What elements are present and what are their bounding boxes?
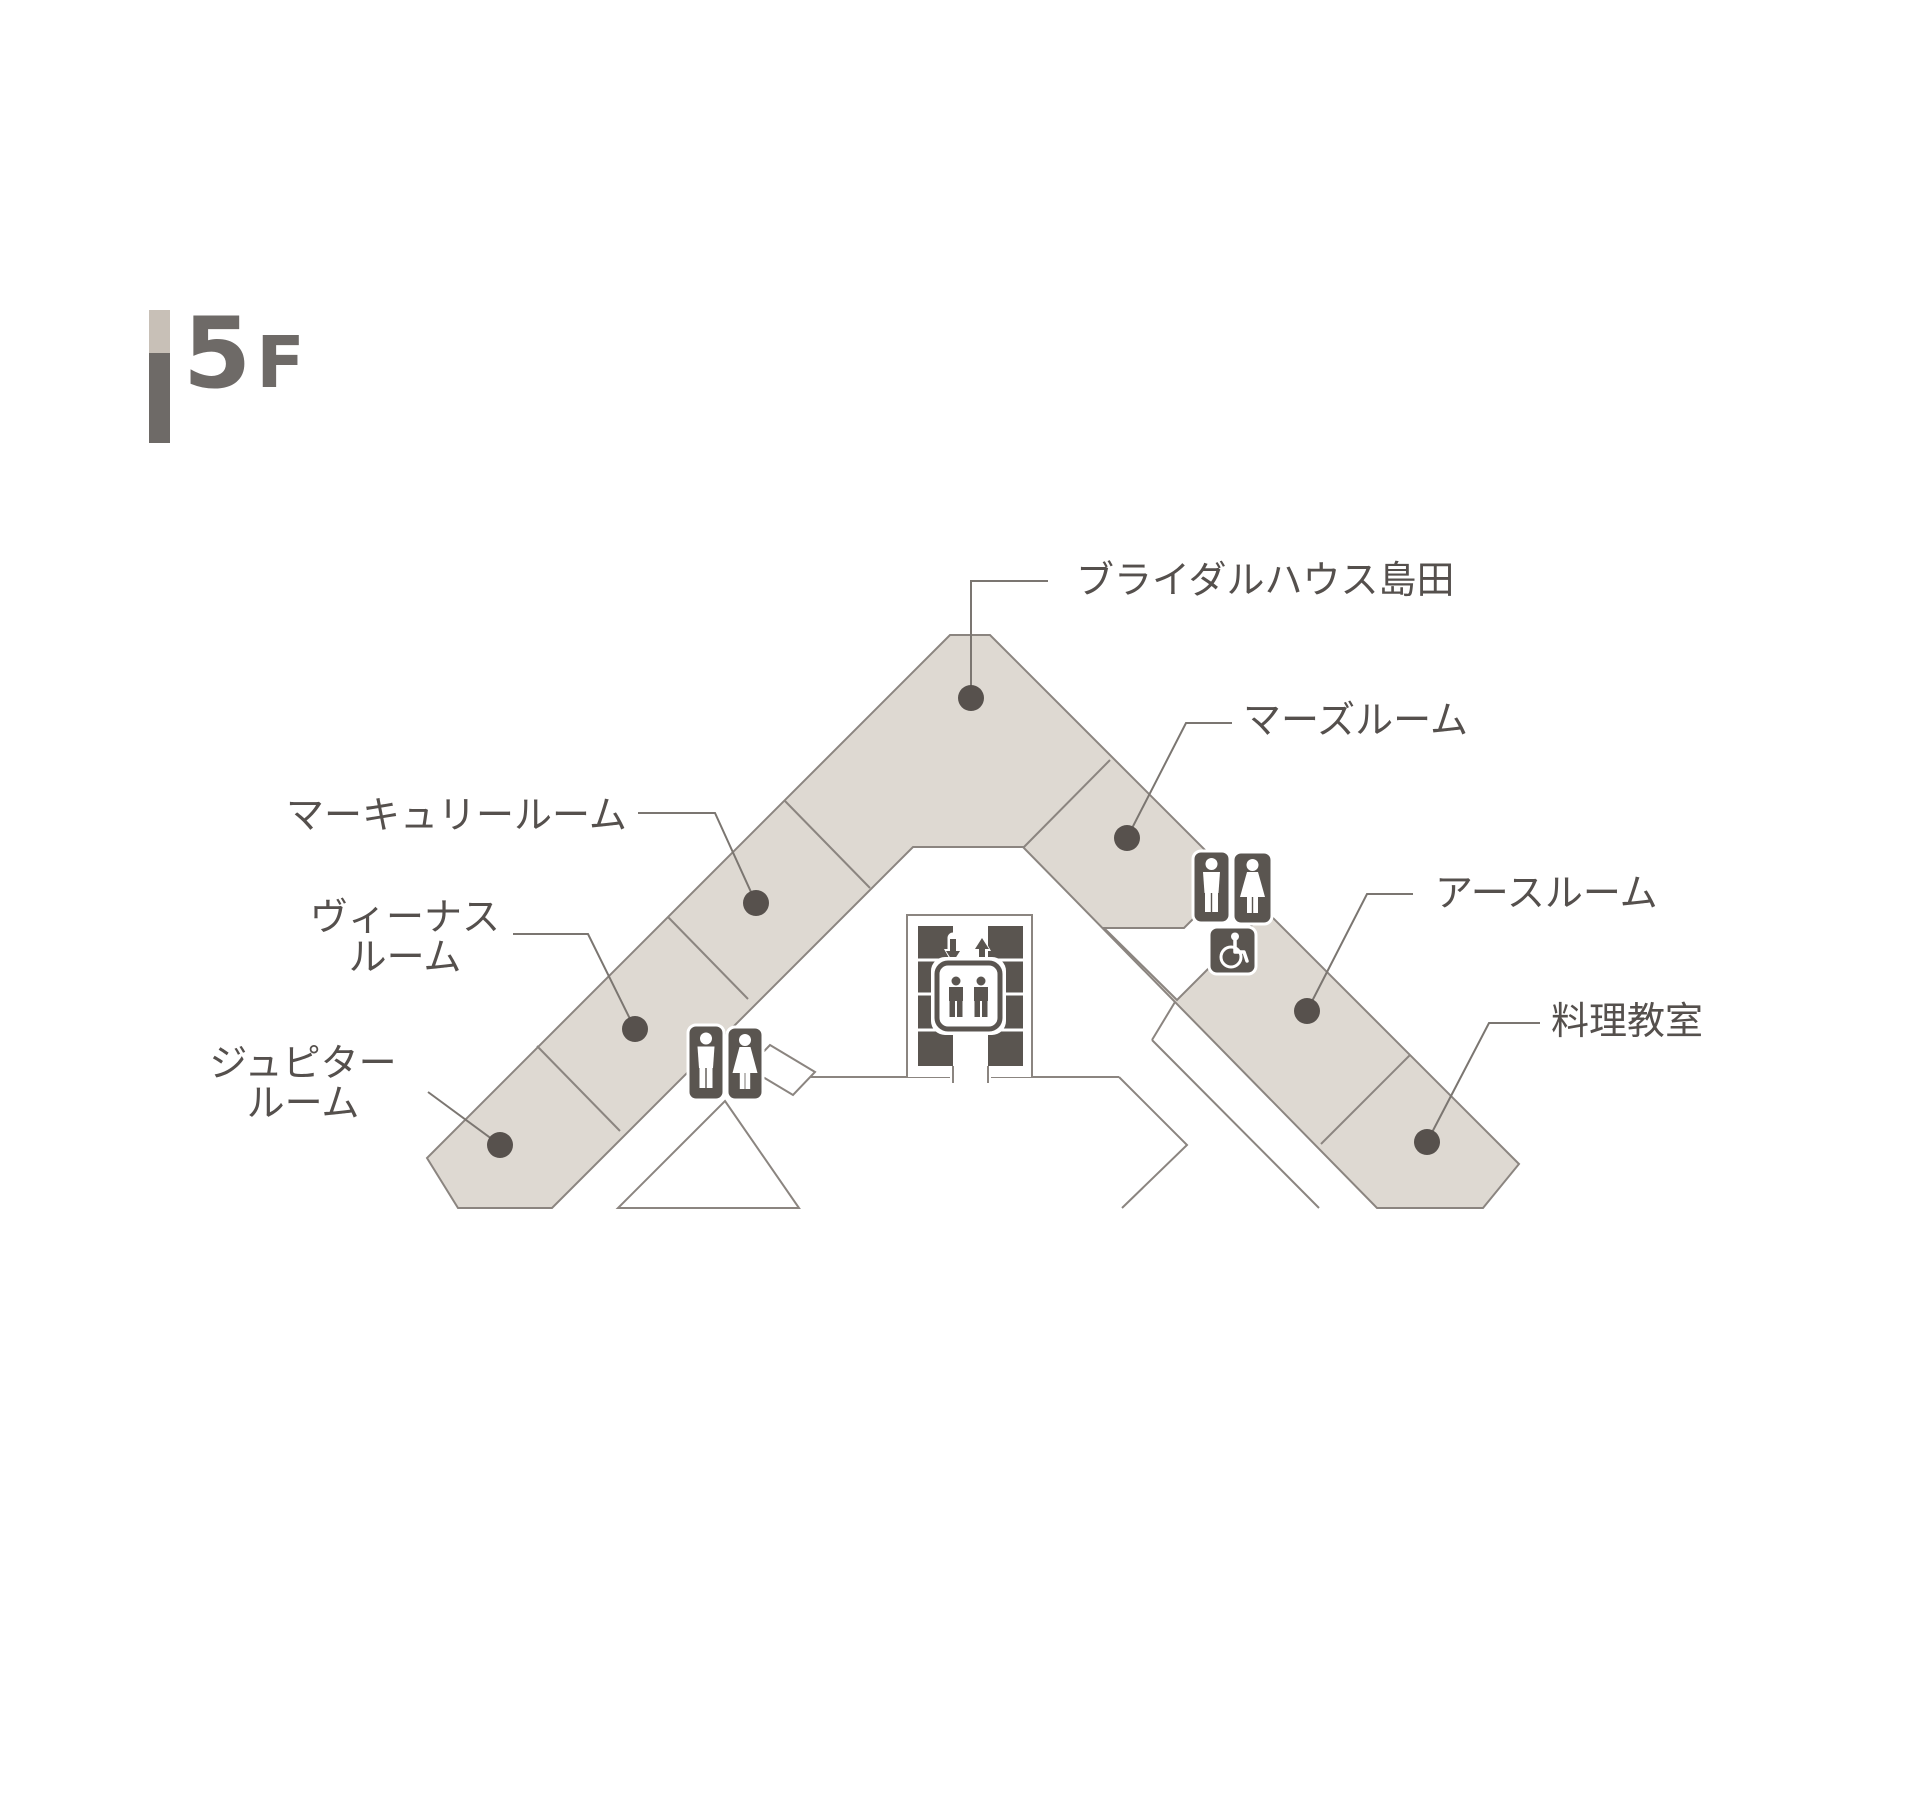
floor-title: 5 F	[183, 296, 305, 414]
room-label-mars-room: マーズルーム	[1243, 700, 1468, 740]
room-marker-dot-jupiter	[487, 1132, 513, 1158]
elevator-shaft	[907, 915, 1032, 1083]
room-label-mercury-room: マーキュリールーム	[286, 795, 627, 835]
room-label-earth-room: アースルーム	[1435, 873, 1658, 913]
floor-suffix: F	[256, 320, 305, 405]
wheelchair-accessible-icon	[1209, 927, 1256, 974]
room-marker-dot-venus	[622, 1016, 648, 1042]
female-restroom-icon	[1233, 852, 1272, 924]
room-marker-dot-earth	[1294, 998, 1320, 1024]
room-label-venus-room: ヴィーナス ルーム	[255, 897, 555, 978]
room-marker-dot-cooking	[1414, 1129, 1440, 1155]
floor-map-page: 5 F ブライダルハウス島田 マーズルーム マーキュリールーム ヴィーナス ルー…	[0, 0, 1929, 1800]
room-label-jupiter-room: ジュピター ルーム	[153, 1043, 453, 1124]
room-marker-dot-bridal	[958, 685, 984, 711]
floor-bar-bottom-segment	[149, 353, 170, 443]
floor-number: 5	[183, 296, 251, 414]
stairs-triangle	[618, 1101, 799, 1208]
female-restroom-icon	[727, 1027, 763, 1100]
restrooms-center	[688, 1025, 763, 1100]
room-label-cooking-classroom: 料理教室	[1551, 1001, 1703, 1041]
room-marker-dot-mercury	[743, 890, 769, 916]
male-restroom-icon	[688, 1025, 724, 1100]
floor-bar-top-segment	[149, 310, 170, 353]
male-restroom-icon	[1193, 851, 1230, 923]
room-marker-dot-mars	[1114, 825, 1140, 851]
room-label-bridal-house-shimada: ブライダルハウス島田	[1076, 560, 1454, 600]
elevator-icon	[931, 957, 1006, 1035]
floor-indicator-bar	[149, 310, 170, 443]
